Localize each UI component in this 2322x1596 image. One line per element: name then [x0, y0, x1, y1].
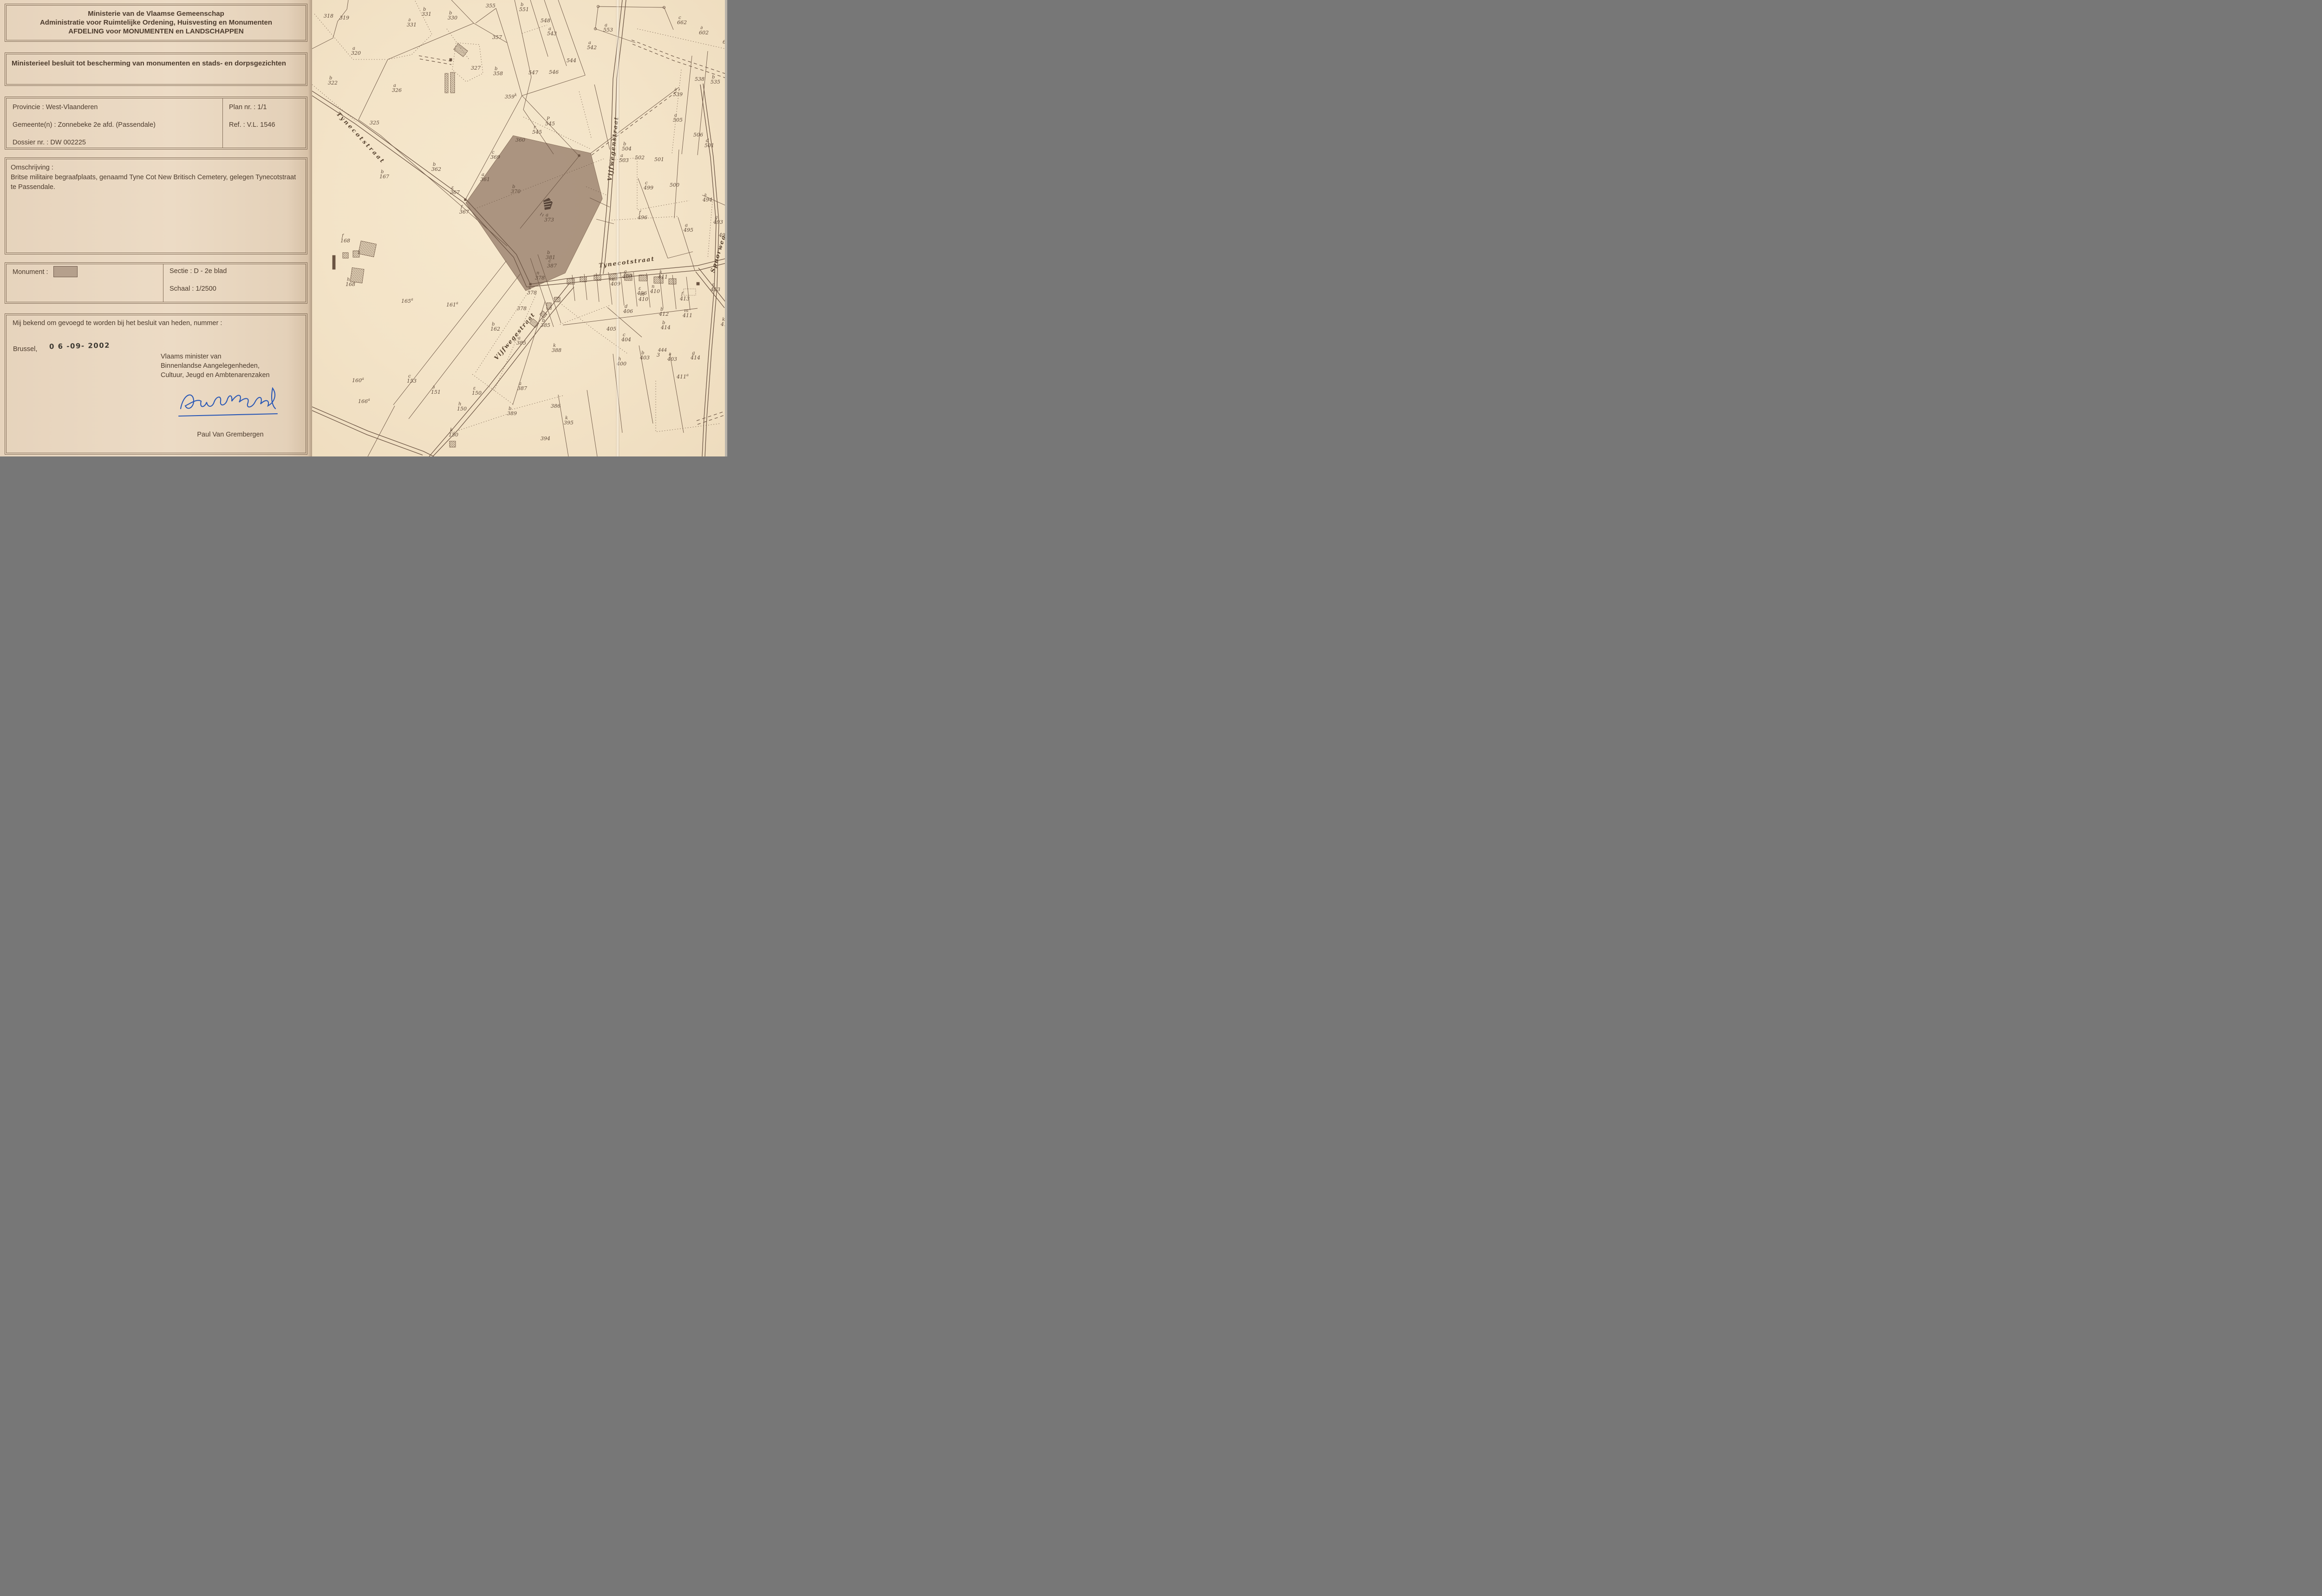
cadastral-map: 318319a320b322325a326b167∂331b331b330355… — [312, 0, 727, 456]
parcel-label: b330 — [448, 11, 457, 21]
parcel-label: a543 — [547, 26, 557, 37]
parcel-label: ∂494 — [702, 193, 712, 203]
parcel-label: ∂539 — [673, 87, 683, 98]
monument-color-swatch — [53, 266, 78, 277]
decree-title-box: Ministerieel besluit tot bescherming van… — [5, 52, 307, 86]
parcel-label: c404 — [621, 332, 631, 343]
parcel-label: 378 — [517, 306, 527, 312]
parcel-label: c662 — [677, 15, 687, 26]
parcel-label: b331 — [422, 7, 431, 17]
parcel-label: a320 — [351, 46, 361, 56]
minister-title-line1: Vlaams minister van — [161, 352, 270, 361]
parcel-label: 165a — [401, 297, 413, 304]
metadata-divider — [222, 98, 223, 148]
parcel-label: 355 — [486, 3, 496, 9]
parcel-label: 325 — [370, 120, 379, 126]
parcel-label: b535 — [711, 75, 720, 85]
parcel-label: P545 — [545, 117, 555, 127]
parcel-label: b322 — [328, 76, 338, 86]
decree-title: Ministerieel besluit tot bescherming van… — [5, 53, 307, 68]
signature-box: Mij bekend om gevoegd te worden bij het … — [5, 313, 307, 455]
legend-divider — [163, 264, 163, 302]
date-stamp: 0 6 -09- 2002 — [49, 341, 110, 351]
minister-title-line3: Cultuur, Jeugd en Ambtenarenzaken — [161, 371, 270, 380]
parcel-label: d501 — [704, 138, 714, 149]
parcel-label: c153 — [407, 374, 417, 384]
schaal-value: Schaal : 1/2500 — [170, 285, 216, 293]
field-gemeente: Gemeente(n) : Zonnebeke 2e afd. (Passend… — [13, 121, 156, 129]
parcel-label: d406 — [623, 304, 633, 314]
parcel-label: a542 — [587, 40, 597, 51]
street-label: Spoorweg — [709, 234, 727, 274]
ministry-line3: AFDELING voor MONUMENTEN en LANDSCHAPPEN — [9, 27, 303, 36]
parcel-label: 360 — [515, 137, 525, 143]
parcel-label: k388 — [552, 343, 561, 353]
parcel-label: b504 — [622, 142, 632, 152]
parcel-label: a503 — [619, 153, 629, 163]
parcel-label: ∂403 — [667, 352, 677, 362]
parcel-label: 411a — [676, 373, 689, 380]
handwritten-signature — [176, 383, 287, 429]
parcel-label: ε413 — [710, 282, 720, 293]
parcel-label: 160a — [352, 377, 364, 384]
parcel-label: 359k — [505, 93, 517, 100]
minister-title-line2: Binnenlandse Aangelegenheden, — [161, 361, 270, 371]
parcel-label: b403 — [639, 351, 650, 361]
parcel-label: a326 — [392, 83, 402, 93]
parcel-label: g414 — [690, 351, 700, 361]
parcel-label: f367 — [459, 205, 469, 215]
parcel-label: r545 — [532, 125, 542, 135]
metadata-box: Provincie : West-Vlaanderen Gemeente(n) … — [5, 97, 307, 150]
parcel-label: 506 — [693, 132, 703, 138]
parcel-label: a495 — [683, 223, 693, 233]
page-edge — [725, 0, 727, 456]
plaats-label: Brussel, — [13, 345, 37, 353]
parcel-label: 548 — [541, 18, 550, 24]
parcel-label: 405 — [606, 326, 616, 332]
parcel-label: h150 — [457, 402, 467, 412]
legend-box: Monument : Sectie : D - 2e blad Schaal :… — [5, 262, 307, 304]
parcel-label: k411 — [658, 270, 668, 280]
parcel-label: c369 — [490, 150, 500, 160]
field-plan: Plan nr. : 1/1 — [229, 104, 267, 111]
field-ref: Ref. : V.L. 1546 — [229, 121, 275, 129]
parcel-label: b389 — [507, 406, 517, 417]
parcel-label: ε150 — [472, 386, 482, 396]
parcel-label: b167 — [379, 169, 389, 180]
parcel-label: a553 — [603, 23, 613, 33]
parcel-label: 318 — [324, 13, 333, 19]
monument-label: Monument : — [13, 268, 48, 276]
fold-crease — [616, 0, 620, 456]
document-panel: Ministerie van de Vlaamse Gemeenschap Ad… — [0, 0, 312, 456]
street-label: Tynecotstraat — [335, 111, 387, 165]
parcel-label: a505 — [673, 113, 683, 123]
scanned-decree-page: Ministerie van de Vlaamse Gemeenschap Ad… — [0, 0, 727, 456]
parcel-label: b551 — [519, 2, 529, 13]
parcel-label: 386 — [551, 403, 561, 409]
field-dossier: Dossier nr. : DW 002225 — [13, 139, 86, 146]
description-text: Britse militaire begraafplaats, genaamd … — [11, 173, 300, 192]
parcel-label: 538 — [695, 76, 704, 82]
parcel-label: b385 — [541, 318, 550, 328]
description-label: Omschrijving : — [11, 163, 300, 173]
parcel-label: 161a — [446, 301, 458, 308]
parcel-label: 319 — [339, 15, 349, 21]
parcel-label: 357 — [492, 34, 502, 40]
description-box: Omschrijving : Britse militaire begraafp… — [5, 157, 307, 254]
parcel-label: g409 — [622, 269, 632, 280]
parcel-label: ∂331 — [407, 18, 417, 28]
parcel-label: 327 — [471, 65, 481, 71]
parcel-label: 547 — [528, 70, 538, 76]
parcel-label: b362 — [431, 162, 441, 172]
parcel-label: 166a — [358, 397, 370, 404]
signer-name: Paul Van Grembergen — [163, 431, 298, 438]
ministry-line2: Administratie voor Ruimtelijke Ordening,… — [9, 18, 303, 27]
parcel-label: b358 — [493, 66, 503, 77]
parcel-label: 500 — [670, 182, 679, 188]
parcel-label: g493 — [713, 215, 723, 225]
parcel-label: 4443 — [657, 348, 667, 358]
parcel-label: a387 — [517, 381, 527, 391]
parcel-label: 544 — [567, 58, 576, 64]
parcel-label: f496 — [637, 210, 647, 221]
parcel-label: k150 — [449, 428, 458, 438]
monument-parcel-highlight — [466, 136, 602, 291]
street-label: Tynecotstraat — [599, 255, 655, 269]
cadastral-map-panel: 318319a320b322325a326b167∂331b331b330355… — [312, 0, 727, 456]
parcel-label: c499 — [643, 181, 653, 191]
bekend-text: Mij bekend om gevoegd te worden bij het … — [13, 319, 222, 327]
parcel-label: b412 — [659, 307, 669, 317]
field-provincie: Provincie : West-Vlaanderen — [13, 104, 98, 111]
street-label: Vijfwegestraat — [493, 311, 536, 361]
parcel-label: b162 — [490, 322, 500, 332]
parcel-label: ε367 — [450, 185, 460, 195]
parcel-label: ∂602 — [699, 26, 709, 36]
ministry-line1: Ministerie van de Vlaamse Gemeenschap — [9, 9, 303, 18]
parcel-label: 546 — [549, 69, 559, 75]
parcel-label: ∂151 — [431, 385, 441, 395]
parcel-label: m411 — [682, 308, 692, 319]
parcel-label: 501 — [654, 156, 664, 163]
ministry-header-box: Ministerie van de Vlaamse Gemeenschap Ad… — [5, 4, 307, 42]
parcel-label: b414 — [660, 320, 671, 331]
parcel-label: 502 — [635, 155, 645, 161]
parcel-label: n410 — [650, 284, 660, 294]
parcel-label: k395 — [564, 416, 574, 426]
parcel-label: f168 — [340, 234, 350, 244]
sectie-value: Sectie : D - 2e blad — [170, 267, 227, 275]
parcel-label: 394 — [541, 436, 550, 442]
